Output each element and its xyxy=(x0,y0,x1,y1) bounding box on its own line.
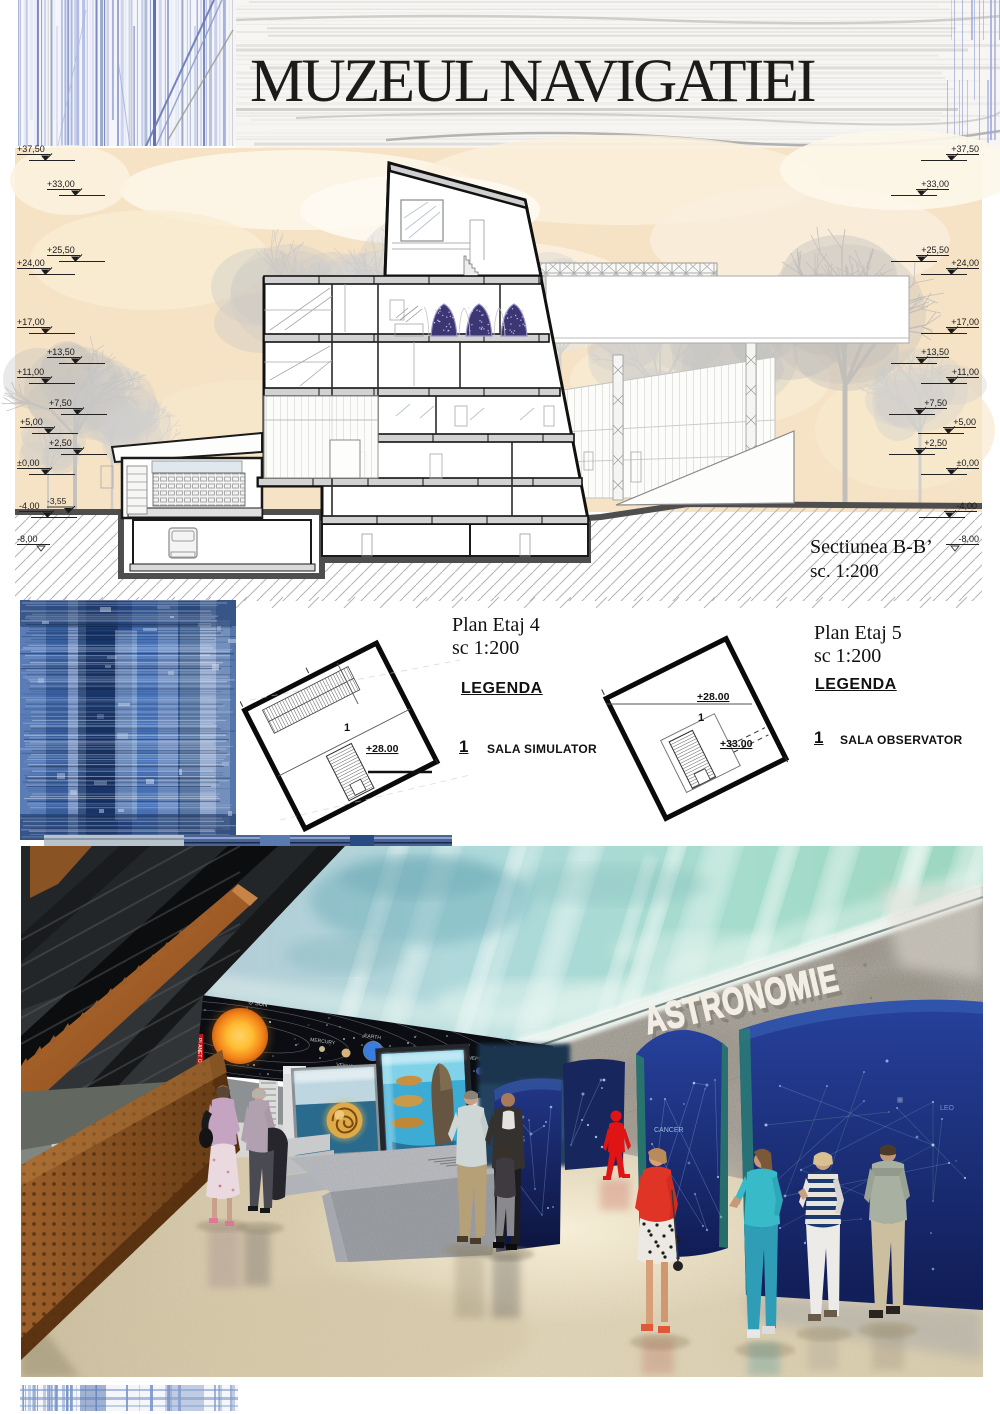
svg-text:+7,50: +7,50 xyxy=(49,398,72,408)
svg-text:LEO: LEO xyxy=(940,1105,955,1112)
svg-text:sc. 1:200: sc. 1:200 xyxy=(810,561,879,582)
svg-text:-4,00: -4,00 xyxy=(19,501,40,511)
svg-text:+33,00: +33,00 xyxy=(921,179,949,189)
svg-text:+17,00: +17,00 xyxy=(17,317,45,327)
svg-text:+5,00: +5,00 xyxy=(20,417,43,427)
svg-text:1: 1 xyxy=(344,722,350,734)
svg-text:1: 1 xyxy=(698,712,704,724)
svg-text:+13,50: +13,50 xyxy=(921,347,949,357)
svg-text:+13,50: +13,50 xyxy=(47,347,75,357)
svg-text:+28.00: +28.00 xyxy=(697,691,730,703)
svg-text:-3,55: -3,55 xyxy=(47,496,67,506)
svg-text:±0,00: ±0,00 xyxy=(17,458,39,468)
svg-text:-8,00: -8,00 xyxy=(958,534,979,544)
svg-text:+24,00: +24,00 xyxy=(17,258,45,268)
svg-text:+33,00: +33,00 xyxy=(47,179,75,189)
svg-text:+37,50: +37,50 xyxy=(17,144,45,154)
svg-text:+28.00: +28.00 xyxy=(366,743,399,755)
svg-text:+2,50: +2,50 xyxy=(924,438,947,448)
svg-text:+33.00: +33.00 xyxy=(720,738,753,750)
svg-text:+2,50: +2,50 xyxy=(49,438,72,448)
svg-text:+24,00: +24,00 xyxy=(951,258,979,268)
svg-text:Sectiunea B-B’: Sectiunea B-B’ xyxy=(810,536,933,558)
svg-text:+37,50: +37,50 xyxy=(951,144,979,154)
svg-text:+17,00: +17,00 xyxy=(951,317,979,327)
svg-text:+25,50: +25,50 xyxy=(921,245,949,255)
svg-text:+25,50: +25,50 xyxy=(47,245,75,255)
svg-text:±0,00: ±0,00 xyxy=(957,458,979,468)
svg-text:+11,00: +11,00 xyxy=(17,367,44,377)
svg-text:+5,00: +5,00 xyxy=(953,417,976,427)
svg-text:+7,50: +7,50 xyxy=(924,398,947,408)
svg-text:+11,00: +11,00 xyxy=(952,367,979,377)
svg-text:CANCER: CANCER xyxy=(654,1127,684,1134)
svg-text:-8,00: -8,00 xyxy=(17,534,38,544)
svg-text:-4,00: -4,00 xyxy=(956,501,977,511)
